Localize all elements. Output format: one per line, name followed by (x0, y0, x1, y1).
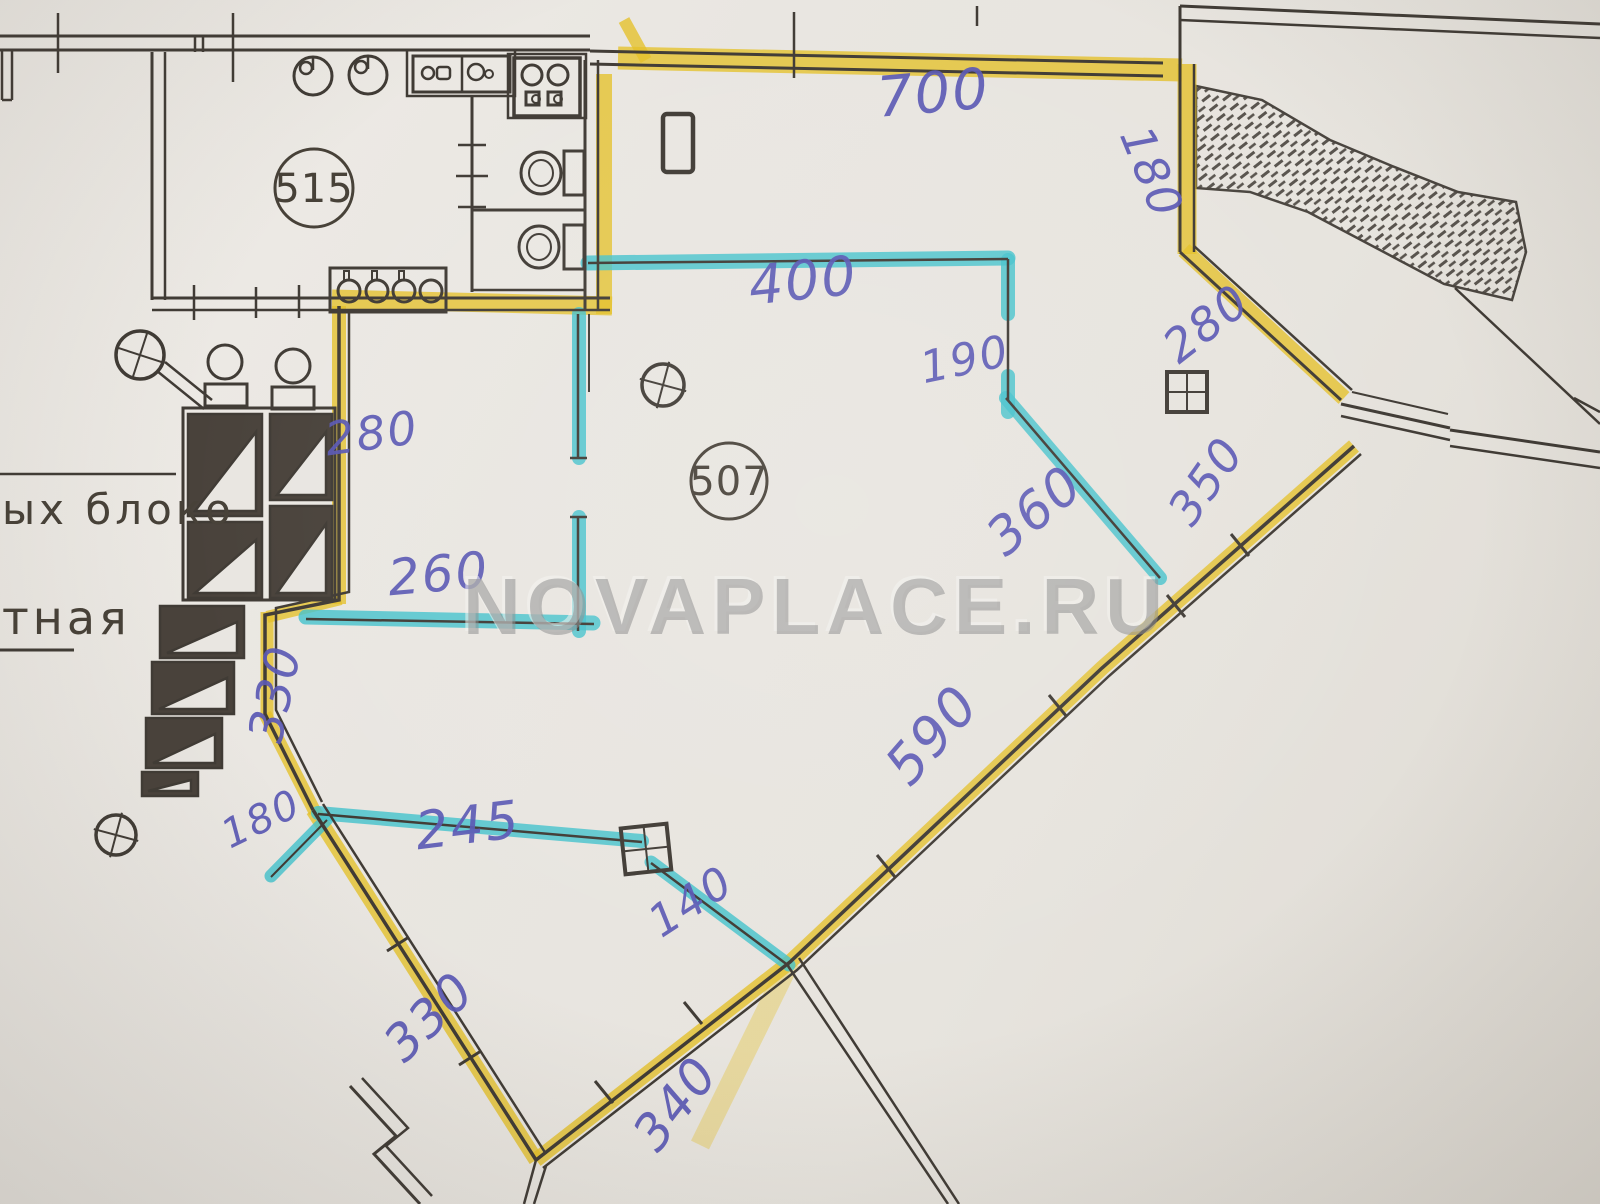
washbasin-icon (205, 345, 247, 406)
margin-text-blocks: ых блоко (2, 485, 235, 534)
toilet-icon (519, 225, 584, 269)
hatched-area (1196, 86, 1526, 300)
margin-text-tnaya: тная (2, 591, 131, 645)
dimension-label-350-6: 350 (1157, 427, 1255, 535)
washbasin-icon (272, 349, 314, 409)
dimension-label-590-13: 590 (872, 673, 991, 797)
room-badge-515: 515 (274, 149, 353, 227)
watermark-text: NOVAPLACE.RU (463, 562, 1169, 651)
dimension-label-190-3: 190 (916, 326, 1015, 395)
dimension-label-280-7: 280 (322, 400, 422, 467)
dimension-label-280-5: 280 (1153, 273, 1260, 373)
room-number-515: 515 (274, 166, 353, 212)
room-badge-507: 507 (689, 443, 768, 519)
dimension-label-700-0: 700 (874, 56, 992, 131)
fixtures-layer (88, 50, 1207, 874)
dimension-label-245-11: 245 (412, 790, 524, 862)
burner-icon (349, 56, 387, 94)
watermark: NOVAPLACE.RU NOVAPLACE.RU (460, 559, 1169, 651)
dimension-label-400-2: 400 (746, 244, 861, 318)
column-icon (634, 356, 693, 415)
door-icon (663, 114, 693, 172)
floor-plan-photo: 515 507 ых блоко тная 700180400190360280… (0, 0, 1600, 1204)
lamp-icon (110, 325, 212, 409)
dimension-label-330-9: 330 (238, 640, 313, 747)
floor-plan-scan: 515 507 ых блоко тная 700180400190360280… (0, 0, 1600, 1204)
stove-icon (508, 54, 586, 118)
column-icon (88, 807, 144, 863)
window-icon (1167, 372, 1207, 412)
sink-counter-icon (407, 50, 515, 96)
toilet-icon (521, 151, 584, 195)
room-number-507: 507 (689, 459, 768, 505)
burner-icon (294, 57, 332, 95)
